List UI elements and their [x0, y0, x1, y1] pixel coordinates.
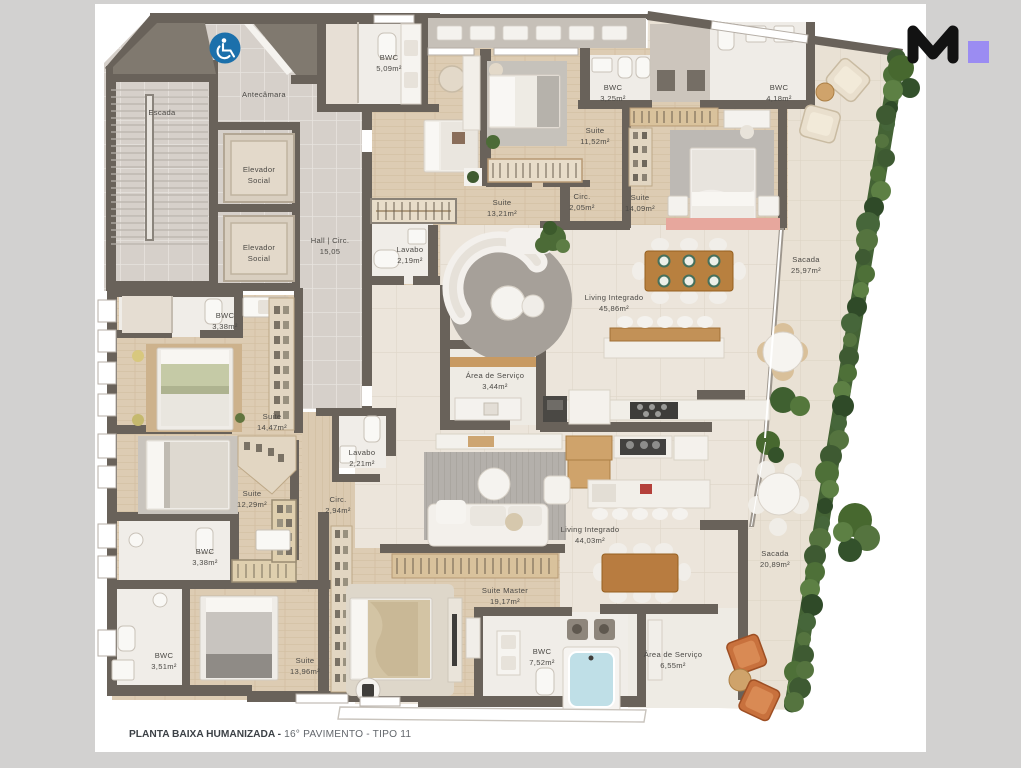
- svg-text:Suite: Suite: [296, 656, 315, 665]
- svg-text:Circ.: Circ.: [329, 495, 346, 504]
- svg-text:3,38m²: 3,38m²: [212, 322, 238, 331]
- svg-text:PLANTA BAIXA HUMANIZADA - 16°: PLANTA BAIXA HUMANIZADA - 16° PAVIMENTO …: [129, 729, 411, 740]
- svg-text:2,21m²: 2,21m²: [349, 459, 375, 468]
- svg-text:5,09m²: 5,09m²: [376, 64, 402, 73]
- svg-text:14,09m²: 14,09m²: [625, 204, 655, 213]
- svg-text:20,89m²: 20,89m²: [760, 560, 790, 569]
- svg-text:11,52m²: 11,52m²: [580, 137, 610, 146]
- svg-text:44,03m²: 44,03m²: [575, 536, 605, 545]
- svg-text:3,44m²: 3,44m²: [482, 382, 508, 391]
- svg-text:4,18m²: 4,18m²: [766, 94, 792, 103]
- svg-text:Social: Social: [248, 254, 270, 263]
- svg-text:Suite: Suite: [493, 198, 512, 207]
- svg-text:BWC: BWC: [770, 83, 789, 92]
- svg-text:2,05m²: 2,05m²: [569, 203, 595, 212]
- svg-text:Suite Master: Suite Master: [482, 586, 528, 595]
- svg-text:BWC: BWC: [216, 311, 235, 320]
- svg-text:12,29m²: 12,29m²: [237, 500, 267, 509]
- svg-text:Lavabo: Lavabo: [349, 448, 376, 457]
- svg-text:2,19m²: 2,19m²: [397, 256, 423, 265]
- svg-text:Suite: Suite: [243, 489, 262, 498]
- svg-text:Social: Social: [248, 176, 270, 185]
- svg-text:BWC: BWC: [533, 647, 552, 656]
- svg-text:Sacada: Sacada: [792, 255, 820, 264]
- svg-text:Living Integrado: Living Integrado: [561, 525, 620, 534]
- svg-text:Circ.: Circ.: [573, 192, 590, 201]
- svg-text:Antecâmara: Antecâmara: [242, 90, 286, 99]
- svg-text:Escada: Escada: [148, 108, 176, 117]
- svg-text:Área de Serviço: Área de Serviço: [644, 650, 703, 659]
- svg-text:Living Integrado: Living Integrado: [585, 293, 644, 302]
- svg-text:Lavabo: Lavabo: [397, 245, 424, 254]
- svg-text:25,97m²: 25,97m²: [791, 266, 821, 275]
- svg-text:Área de Serviço: Área de Serviço: [466, 371, 525, 380]
- svg-text:Elevador: Elevador: [243, 165, 276, 174]
- svg-text:Suite: Suite: [586, 126, 605, 135]
- svg-text:15,05: 15,05: [320, 247, 341, 256]
- svg-text:Suite: Suite: [631, 193, 650, 202]
- svg-text:3,25m²: 3,25m²: [600, 94, 626, 103]
- svg-text:BWC: BWC: [380, 53, 399, 62]
- svg-text:BWC: BWC: [604, 83, 623, 92]
- svg-text:13,96m²: 13,96m²: [290, 667, 320, 676]
- svg-text:3,38m²: 3,38m²: [192, 558, 218, 567]
- svg-text:19,17m²: 19,17m²: [490, 597, 520, 606]
- svg-text:7,52m²: 7,52m²: [529, 658, 555, 667]
- svg-text:Suite: Suite: [263, 412, 282, 421]
- svg-text:14,47m²: 14,47m²: [257, 423, 287, 432]
- svg-text:BWC: BWC: [155, 651, 174, 660]
- svg-text:45,86m²: 45,86m²: [599, 304, 629, 313]
- svg-text:2,94m²: 2,94m²: [325, 506, 351, 515]
- svg-text:Elevador: Elevador: [243, 243, 276, 252]
- svg-text:6,55m²: 6,55m²: [660, 661, 686, 670]
- svg-text:Sacada: Sacada: [761, 549, 789, 558]
- svg-text:13,21m²: 13,21m²: [487, 209, 517, 218]
- svg-text:3,51m²: 3,51m²: [151, 662, 177, 671]
- svg-text:Hall | Circ.: Hall | Circ.: [311, 236, 349, 245]
- svg-text:BWC: BWC: [196, 547, 215, 556]
